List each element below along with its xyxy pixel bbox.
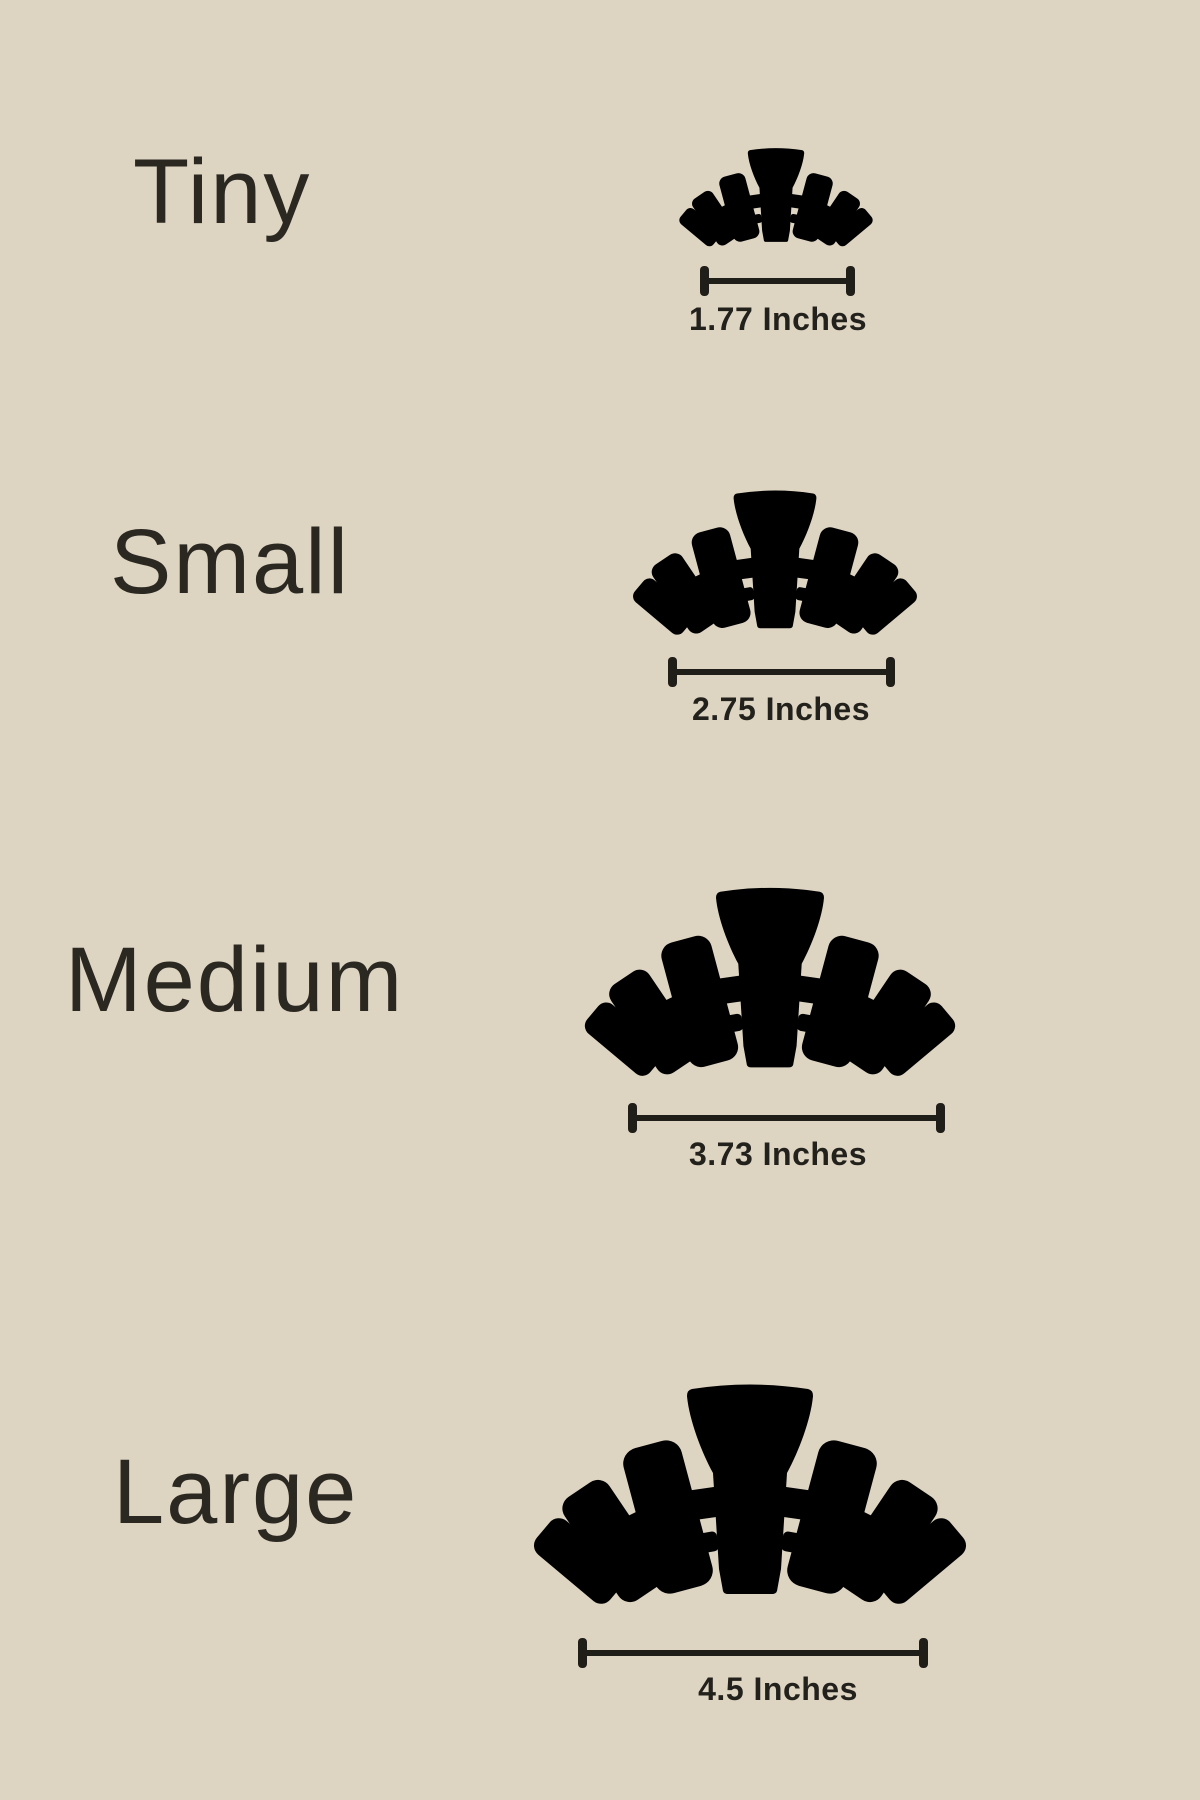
measurement-bar-small — [668, 657, 895, 687]
measurement-bar-large — [578, 1638, 928, 1668]
claw-clip-illustration-large — [540, 1373, 960, 1623]
measurement-bar-medium — [628, 1103, 945, 1133]
measurement-end-cap-right — [936, 1103, 945, 1133]
claw-clip-illustration-tiny — [682, 143, 870, 255]
size-chart: Tiny 1.77 Inches Small 2.75 Inches M — [0, 0, 1200, 1800]
measurement-end-cap-right — [846, 266, 855, 296]
claw-clip-icon — [590, 878, 950, 1092]
claw-clip-icon — [637, 483, 913, 647]
measurement-line — [707, 278, 848, 284]
measurement-line — [675, 669, 888, 675]
measurement-end-cap-right — [886, 657, 895, 687]
measurement-line — [585, 1650, 921, 1656]
claw-clip-illustration-medium — [590, 878, 950, 1092]
measurement-value-tiny: 1.77 Inches — [689, 303, 867, 335]
size-label-large: Large — [113, 1446, 358, 1538]
measurement-value-small: 2.75 Inches — [692, 693, 870, 725]
size-label-tiny: Tiny — [133, 146, 311, 238]
measurement-bar-tiny — [700, 266, 855, 296]
measurement-value-medium: 3.73 Inches — [689, 1138, 867, 1170]
size-label-small: Small — [110, 516, 350, 608]
claw-clip-icon — [682, 143, 870, 255]
measurement-line — [635, 1115, 938, 1121]
measurement-value-large: 4.5 Inches — [698, 1673, 858, 1705]
measurement-end-cap-right — [919, 1638, 928, 1668]
claw-clip-icon — [540, 1373, 960, 1623]
size-label-medium: Medium — [65, 934, 404, 1026]
claw-clip-illustration-small — [637, 483, 913, 647]
